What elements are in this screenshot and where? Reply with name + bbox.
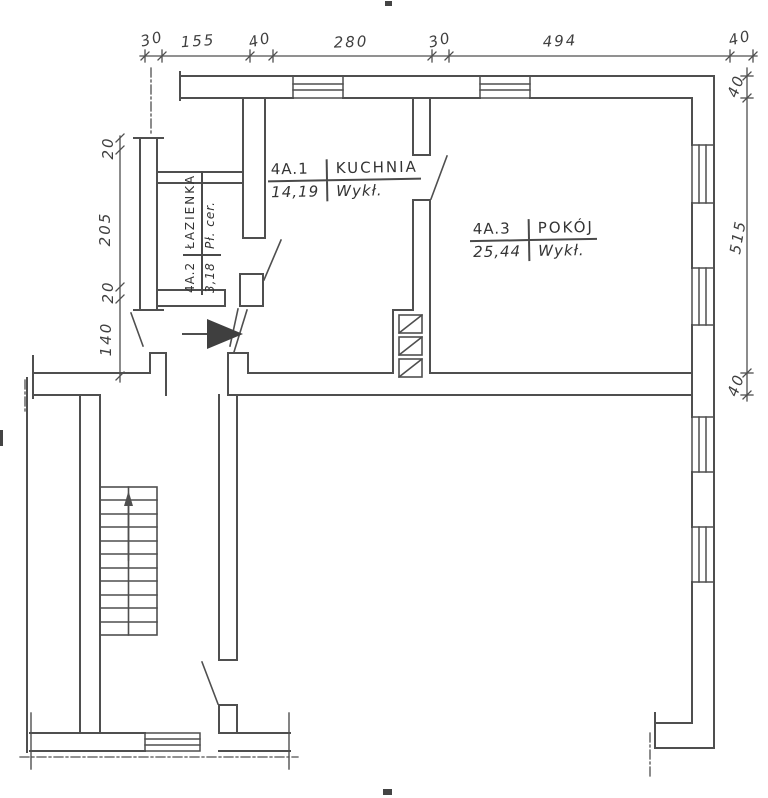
room-id: 4A.3 bbox=[470, 219, 530, 242]
entrance-arrow-icon bbox=[183, 319, 243, 349]
window-symbols bbox=[145, 76, 714, 751]
dim-label-left-0: 20 bbox=[99, 136, 117, 159]
room-floor: Pł. cer. bbox=[203, 171, 221, 254]
room-id: 4A.1 bbox=[268, 159, 328, 182]
dim-label-left-3: 140 bbox=[97, 322, 115, 357]
lower-walls bbox=[27, 378, 290, 769]
window-icon bbox=[293, 76, 343, 98]
room-name: POKÓJ bbox=[530, 218, 597, 241]
dim-line-left bbox=[116, 134, 124, 382]
room-floor: Wykł. bbox=[328, 179, 421, 200]
kitchen-left-wall bbox=[243, 98, 265, 238]
top-exterior-wall bbox=[180, 72, 714, 100]
dim-label-top-3: 280 bbox=[333, 32, 368, 51]
door-swing-kitchen-pokoj bbox=[431, 156, 447, 199]
door-swing-hall-left bbox=[131, 313, 143, 346]
room-area: 14,19 bbox=[268, 181, 328, 202]
room-label-kuchnia: 4A.1 KUCHNIA 14,19 Wykł. bbox=[268, 158, 422, 202]
room-label-lazienka: 4A.2 ŁAZIENKA 3,18 Pł. cer. bbox=[183, 171, 221, 295]
floor-plan-drawing bbox=[0, 0, 768, 798]
room-area: 25,44 bbox=[470, 241, 530, 262]
door-swing-lines bbox=[131, 156, 447, 704]
dim-label-left-2: 20 bbox=[99, 280, 117, 303]
floor-plan-sheet: 4A.1 KUCHNIA 14,19 Wykł. 4A.2 ŁAZIENKA 3… bbox=[0, 0, 768, 798]
room-area: 3,18 bbox=[203, 254, 221, 295]
room-name: ŁAZIENKA bbox=[183, 171, 203, 254]
door-swing-lower-corridor bbox=[202, 662, 218, 704]
window-icon bbox=[145, 733, 200, 751]
dim-line-top bbox=[140, 50, 757, 62]
window-icon bbox=[692, 417, 714, 472]
stairs-up-arrow-icon bbox=[124, 491, 133, 560]
dim-label-top-1: 155 bbox=[180, 31, 216, 51]
mid-wall bbox=[33, 353, 692, 398]
window-icon bbox=[692, 145, 714, 203]
dim-label-top-5: 494 bbox=[542, 31, 578, 51]
door-swing-kitchen bbox=[264, 240, 281, 280]
chimney-flue-icons bbox=[399, 315, 422, 377]
staircase bbox=[100, 487, 157, 635]
room-label-pokoj: 4A.3 POKÓJ 25,44 Wykł. bbox=[470, 218, 598, 262]
window-icon bbox=[480, 76, 530, 98]
right-exterior-wall bbox=[655, 76, 714, 748]
scan-artifacts bbox=[0, 1, 392, 795]
room-floor: Wykł. bbox=[530, 240, 597, 261]
dim-label-left-1: 205 bbox=[96, 212, 114, 247]
window-icon bbox=[692, 527, 714, 582]
room-id: 4A.2 bbox=[183, 254, 203, 295]
room-name: KUCHNIA bbox=[328, 158, 421, 181]
window-icon bbox=[692, 268, 714, 325]
